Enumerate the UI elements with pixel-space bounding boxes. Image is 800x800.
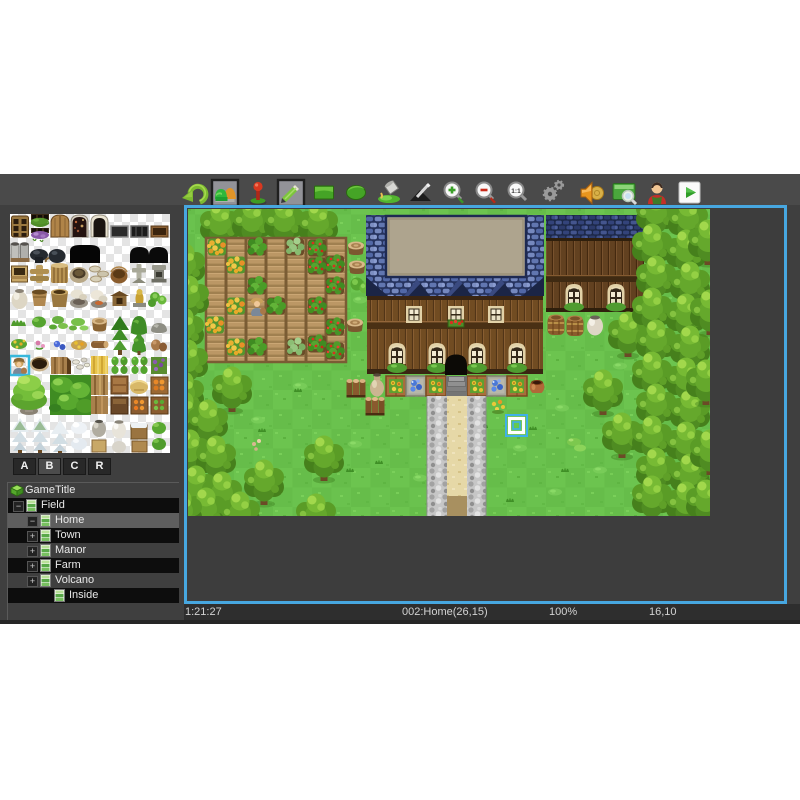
- svg-text:1:1: 1:1: [511, 188, 521, 195]
